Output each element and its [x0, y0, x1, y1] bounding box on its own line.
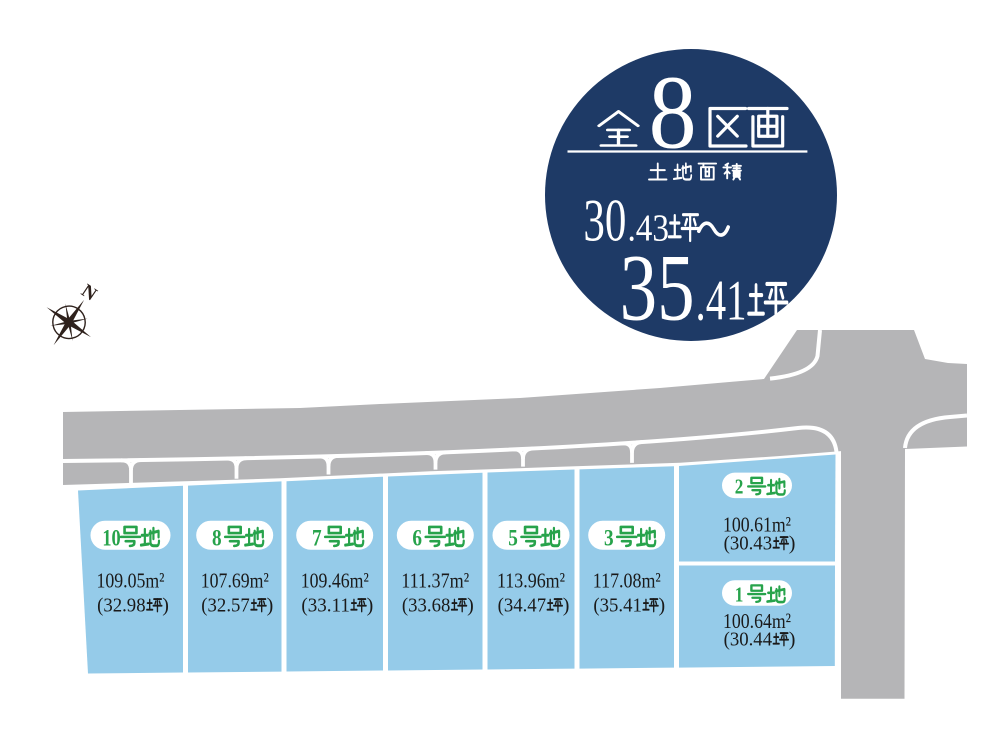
svg-text:): ) [367, 595, 374, 617]
svg-text:35: 35 [620, 235, 695, 341]
svg-text:8: 8 [649, 54, 697, 171]
svg-text:): ) [267, 595, 274, 617]
svg-text:6: 6 [412, 525, 422, 551]
svg-text:): ) [162, 595, 169, 617]
svg-text:7: 7 [312, 525, 322, 551]
svg-text:113.96m²: 113.96m² [497, 569, 565, 593]
svg-text:(32.98: (32.98 [97, 595, 146, 617]
svg-text:1: 1 [735, 584, 744, 607]
svg-text:(32.57: (32.57 [201, 595, 250, 617]
svg-text:3: 3 [604, 525, 614, 551]
svg-text:(30.43: (30.43 [724, 533, 773, 555]
svg-text:109.05m²: 109.05m² [97, 569, 165, 593]
svg-text:2: 2 [735, 476, 744, 499]
svg-text:): ) [467, 595, 474, 617]
svg-text:109.46m²: 109.46m² [301, 569, 369, 593]
svg-text:): ) [563, 595, 570, 617]
svg-text:(33.68: (33.68 [402, 595, 451, 617]
svg-text:): ) [789, 629, 796, 651]
svg-text:(33.11: (33.11 [301, 595, 350, 617]
svg-text:): ) [789, 533, 796, 555]
svg-text:111.37m²: 111.37m² [401, 569, 469, 593]
svg-text:): ) [659, 595, 666, 617]
svg-text:8: 8 [212, 525, 222, 551]
svg-text:5: 5 [508, 525, 518, 551]
svg-text:(34.47: (34.47 [498, 595, 546, 617]
svg-text:107.69m²: 107.69m² [201, 569, 269, 593]
svg-text:(30.44: (30.44 [724, 629, 773, 651]
svg-text:10: 10 [102, 524, 120, 551]
svg-text:117.08m²: 117.08m² [593, 569, 661, 593]
svg-text:.41: .41 [696, 270, 747, 333]
svg-text:(35.41: (35.41 [593, 595, 642, 617]
svg-text:N: N [77, 280, 100, 305]
